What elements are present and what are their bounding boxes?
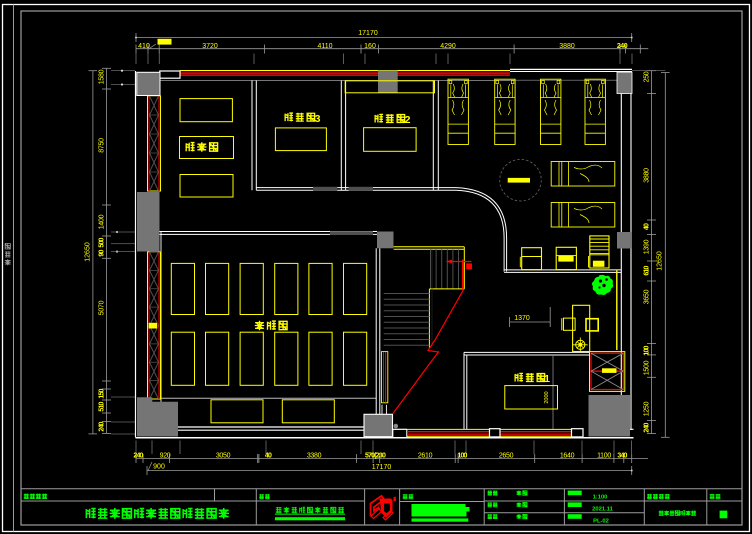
svg-text:1390: 1390	[644, 239, 651, 254]
svg-text:1250: 1250	[644, 401, 651, 416]
svg-text:410: 410	[138, 43, 150, 50]
svg-text:17170: 17170	[372, 464, 392, 471]
svg-text:160: 160	[364, 43, 376, 50]
svg-text:3650: 3650	[644, 289, 651, 304]
svg-text:250: 250	[644, 71, 651, 82]
svg-text:2650: 2650	[499, 453, 514, 460]
svg-text:1640: 1640	[560, 453, 575, 460]
svg-text:3380: 3380	[307, 453, 322, 460]
svg-text:510: 510	[99, 401, 106, 411]
svg-text:240: 240	[644, 422, 651, 432]
svg-text:12650: 12650	[85, 242, 92, 262]
svg-text:240: 240	[99, 421, 106, 431]
svg-text:3880: 3880	[644, 168, 651, 183]
svg-text:2610: 2610	[418, 453, 433, 460]
svg-text:2000: 2000	[544, 391, 550, 403]
svg-text:150: 150	[99, 388, 106, 398]
svg-text:4290: 4290	[440, 43, 456, 50]
svg-text:90: 90	[99, 250, 106, 257]
svg-text:570(230: 570(230	[365, 453, 386, 460]
svg-text:40: 40	[644, 223, 651, 230]
svg-text:3720: 3720	[202, 43, 218, 50]
svg-text:3880: 3880	[559, 43, 575, 50]
svg-text:1100: 1100	[597, 453, 611, 460]
svg-text:12650: 12650	[657, 251, 664, 271]
svg-text:100: 100	[457, 453, 467, 460]
svg-text:3: 3	[315, 113, 321, 125]
svg-text:900: 900	[153, 464, 165, 471]
svg-text:4110: 4110	[317, 43, 332, 50]
svg-text:1:100: 1:100	[593, 495, 608, 501]
svg-text:3050: 3050	[216, 453, 231, 460]
svg-text:100: 100	[644, 345, 651, 355]
svg-text:1580: 1580	[99, 69, 106, 84]
svg-text:240: 240	[133, 453, 143, 460]
svg-text:8750: 8750	[99, 138, 106, 153]
svg-text:920: 920	[160, 453, 171, 460]
svg-text:2: 2	[405, 114, 411, 126]
svg-text:340: 340	[617, 453, 627, 460]
svg-text:610: 610	[644, 265, 651, 275]
svg-text:40: 40	[265, 453, 272, 460]
svg-text:1: 1	[544, 373, 550, 385]
svg-text:2021.11: 2021.11	[592, 507, 613, 513]
svg-text:240: 240	[617, 43, 628, 50]
svg-text:5070: 5070	[99, 300, 106, 315]
svg-text:500: 500	[99, 237, 106, 247]
svg-text:1400: 1400	[99, 214, 106, 229]
svg-text:PL-02: PL-02	[593, 518, 609, 524]
svg-text:1370: 1370	[514, 315, 530, 322]
svg-text:1500: 1500	[644, 360, 651, 375]
svg-text:17170: 17170	[358, 30, 378, 37]
